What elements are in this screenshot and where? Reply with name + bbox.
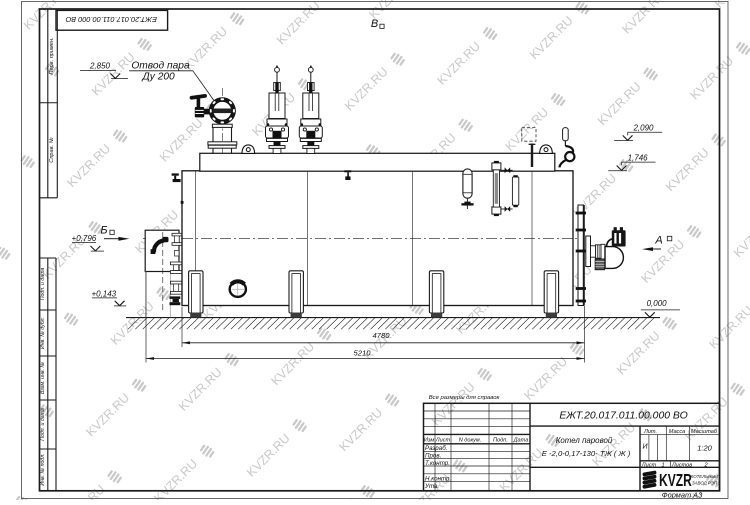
svg-text:KVZR.RU: KVZR.RU	[342, 65, 391, 114]
svg-text:Дата: Дата	[513, 438, 529, 444]
svg-text:+0,796: +0,796	[72, 234, 97, 243]
svg-text:Разраб.: Разраб.	[425, 445, 447, 452]
svg-text:КОТЕЛЬНЫЙ: КОТЕЛЬНЫЙ	[691, 474, 719, 479]
svg-text:N докум.: N докум.	[459, 438, 482, 444]
svg-text:KVZR.RU: KVZR.RU	[152, 457, 201, 500]
svg-text:KVZR.RU: KVZR.RU	[337, 405, 386, 454]
svg-text:Масса: Масса	[669, 429, 686, 435]
svg-text:Ду 200: Ду 200	[141, 72, 175, 83]
svg-text:ЗАВОД РЭП: ЗАВОД РЭП	[692, 481, 718, 486]
svg-text:KVZR.RU: KVZR.RU	[157, 116, 206, 165]
svg-text:KVZR.RU: KVZR.RU	[429, 380, 478, 429]
svg-text:Формат А3: Формат А3	[662, 491, 703, 500]
svg-text:ЕЖТ.20.017.011.00.000 ВО: ЕЖТ.20.017.011.00.000 ВО	[65, 15, 157, 24]
svg-text:А: А	[654, 235, 662, 247]
svg-text:Е -2,0-0,17-130- ТЖ ( Ж ): Е -2,0-0,17-130- ТЖ ( Ж )	[542, 449, 631, 458]
svg-text:Лит.: Лит.	[643, 429, 657, 435]
svg-text:Н.контр.: Н.контр.	[425, 475, 451, 482]
svg-text:Изм: Изм	[424, 438, 435, 444]
svg-text:И: И	[642, 443, 648, 450]
svg-text:2,090: 2,090	[632, 123, 654, 132]
svg-text:Т.контр.: Т.контр.	[425, 460, 450, 467]
svg-text:KVZR.RU: KVZR.RU	[84, 391, 133, 440]
svg-text:Котел паровой: Котел паровой	[556, 436, 613, 445]
svg-text:KVZR.RU: KVZR.RU	[435, 39, 484, 88]
svg-text:KVZR.RU: KVZR.RU	[595, 79, 644, 128]
svg-text:KVZR.RU: KVZR.RU	[497, 446, 546, 495]
svg-text:1,746: 1,746	[628, 154, 649, 163]
svg-text:1:20: 1:20	[697, 443, 712, 452]
svg-text:Справ. №: Справ. №	[49, 137, 55, 162]
svg-text:Утв.: Утв.	[424, 483, 439, 490]
svg-text:Все размеры для справок: Все размеры для справок	[429, 395, 500, 401]
svg-text:+0,143: +0,143	[91, 289, 116, 298]
svg-text:Лист: Лист	[641, 462, 657, 468]
svg-text:Взам. инв. №: Взам. инв. №	[40, 362, 46, 394]
svg-text:KVZR.RU: KVZR.RU	[274, 0, 323, 47]
svg-text:KVZR.RU: KVZR.RU	[65, 141, 114, 190]
svg-text:4780: 4780	[373, 331, 391, 340]
svg-text:KVZR.RU: KVZR.RU	[527, 13, 576, 62]
svg-text:KVZR.RU: KVZR.RU	[244, 431, 293, 480]
svg-text:KVZR.RU: KVZR.RU	[269, 339, 318, 388]
svg-text:1: 1	[661, 462, 664, 468]
svg-text:Подп. и дата: Подп. и дата	[40, 268, 46, 301]
svg-text:Перв. примен.: Перв. примен.	[49, 37, 55, 74]
svg-text:KVZR.RU: KVZR.RU	[620, 0, 669, 37]
svg-text:5210: 5210	[354, 349, 372, 358]
svg-text:KVZR.RU: KVZR.RU	[89, 50, 138, 99]
svg-text:Отвод пара: Отвод пара	[131, 61, 190, 72]
svg-text:KVZR.RU: KVZR.RU	[688, 54, 737, 103]
svg-text:Лист: Лист	[435, 438, 451, 444]
svg-text:0,000: 0,000	[647, 299, 668, 308]
svg-text:Масштаб: Масштаб	[691, 429, 718, 435]
svg-text:KVZR: KVZR	[659, 471, 692, 491]
svg-text:Б: Б	[100, 225, 107, 237]
svg-text:Инв. № дубл.: Инв. № дубл.	[40, 317, 46, 349]
svg-text:В: В	[371, 18, 378, 30]
svg-text:Пров.: Пров.	[425, 453, 441, 460]
svg-text:KVZR.RU: KVZR.RU	[108, 299, 157, 348]
svg-text:Подп.: Подп.	[493, 438, 508, 444]
svg-text:KVZR.RU: KVZR.RU	[522, 354, 571, 403]
svg-text:ЕЖТ.20.017.011.00.000 ВО: ЕЖТ.20.017.011.00.000 ВО	[559, 411, 687, 422]
svg-text:Инв. № подл.: Инв. № подл.	[40, 453, 46, 485]
svg-text:KVZR.RU: KVZR.RU	[614, 329, 663, 378]
svg-text:KVZR.RU: KVZR.RU	[731, 211, 750, 260]
svg-text:KVZR.RU: KVZR.RU	[176, 365, 225, 414]
svg-text:KVZR.RU: KVZR.RU	[21, 0, 70, 33]
svg-text:Листов: Листов	[671, 462, 692, 468]
svg-text:KVZR.RU: KVZR.RU	[639, 237, 688, 286]
svg-text:KVZR.RU: KVZR.RU	[663, 145, 712, 194]
svg-text:Подп. и дата: Подп. и дата	[40, 408, 46, 441]
svg-text:2,850: 2,850	[89, 61, 111, 70]
